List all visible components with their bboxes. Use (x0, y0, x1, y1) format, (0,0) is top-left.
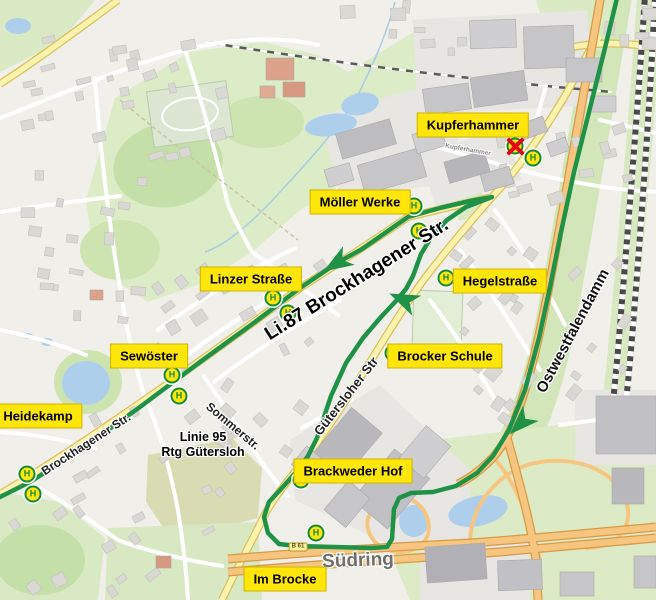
stop-label-linzer-stra-e: Linzer Straße (200, 267, 302, 292)
stop-label-m-ller-werke: Möller Werke (310, 190, 411, 215)
stop-label-brocker-schule: Brocker Schule (387, 344, 502, 369)
map-canvas: HHHHHHHHHHHHHH Li.87 Brockhagener Str.Os… (0, 0, 656, 600)
stop-label-im-brocke: Im Brocke (244, 567, 327, 592)
stop-label-heidekamp: Heidekamp (0, 404, 83, 429)
stop-label-kupferhammer: Kupferhammer (417, 113, 529, 138)
stop-label-brackweder-hof: Brackweder Hof (294, 459, 413, 484)
stop-labels-layer: KupferhammerMöller WerkeLinzer StraßeHeg… (0, 0, 656, 600)
stop-label-hegelstra-e: Hegelstraße (453, 269, 547, 294)
stop-label-sew-ster: Sewöster (110, 344, 188, 369)
